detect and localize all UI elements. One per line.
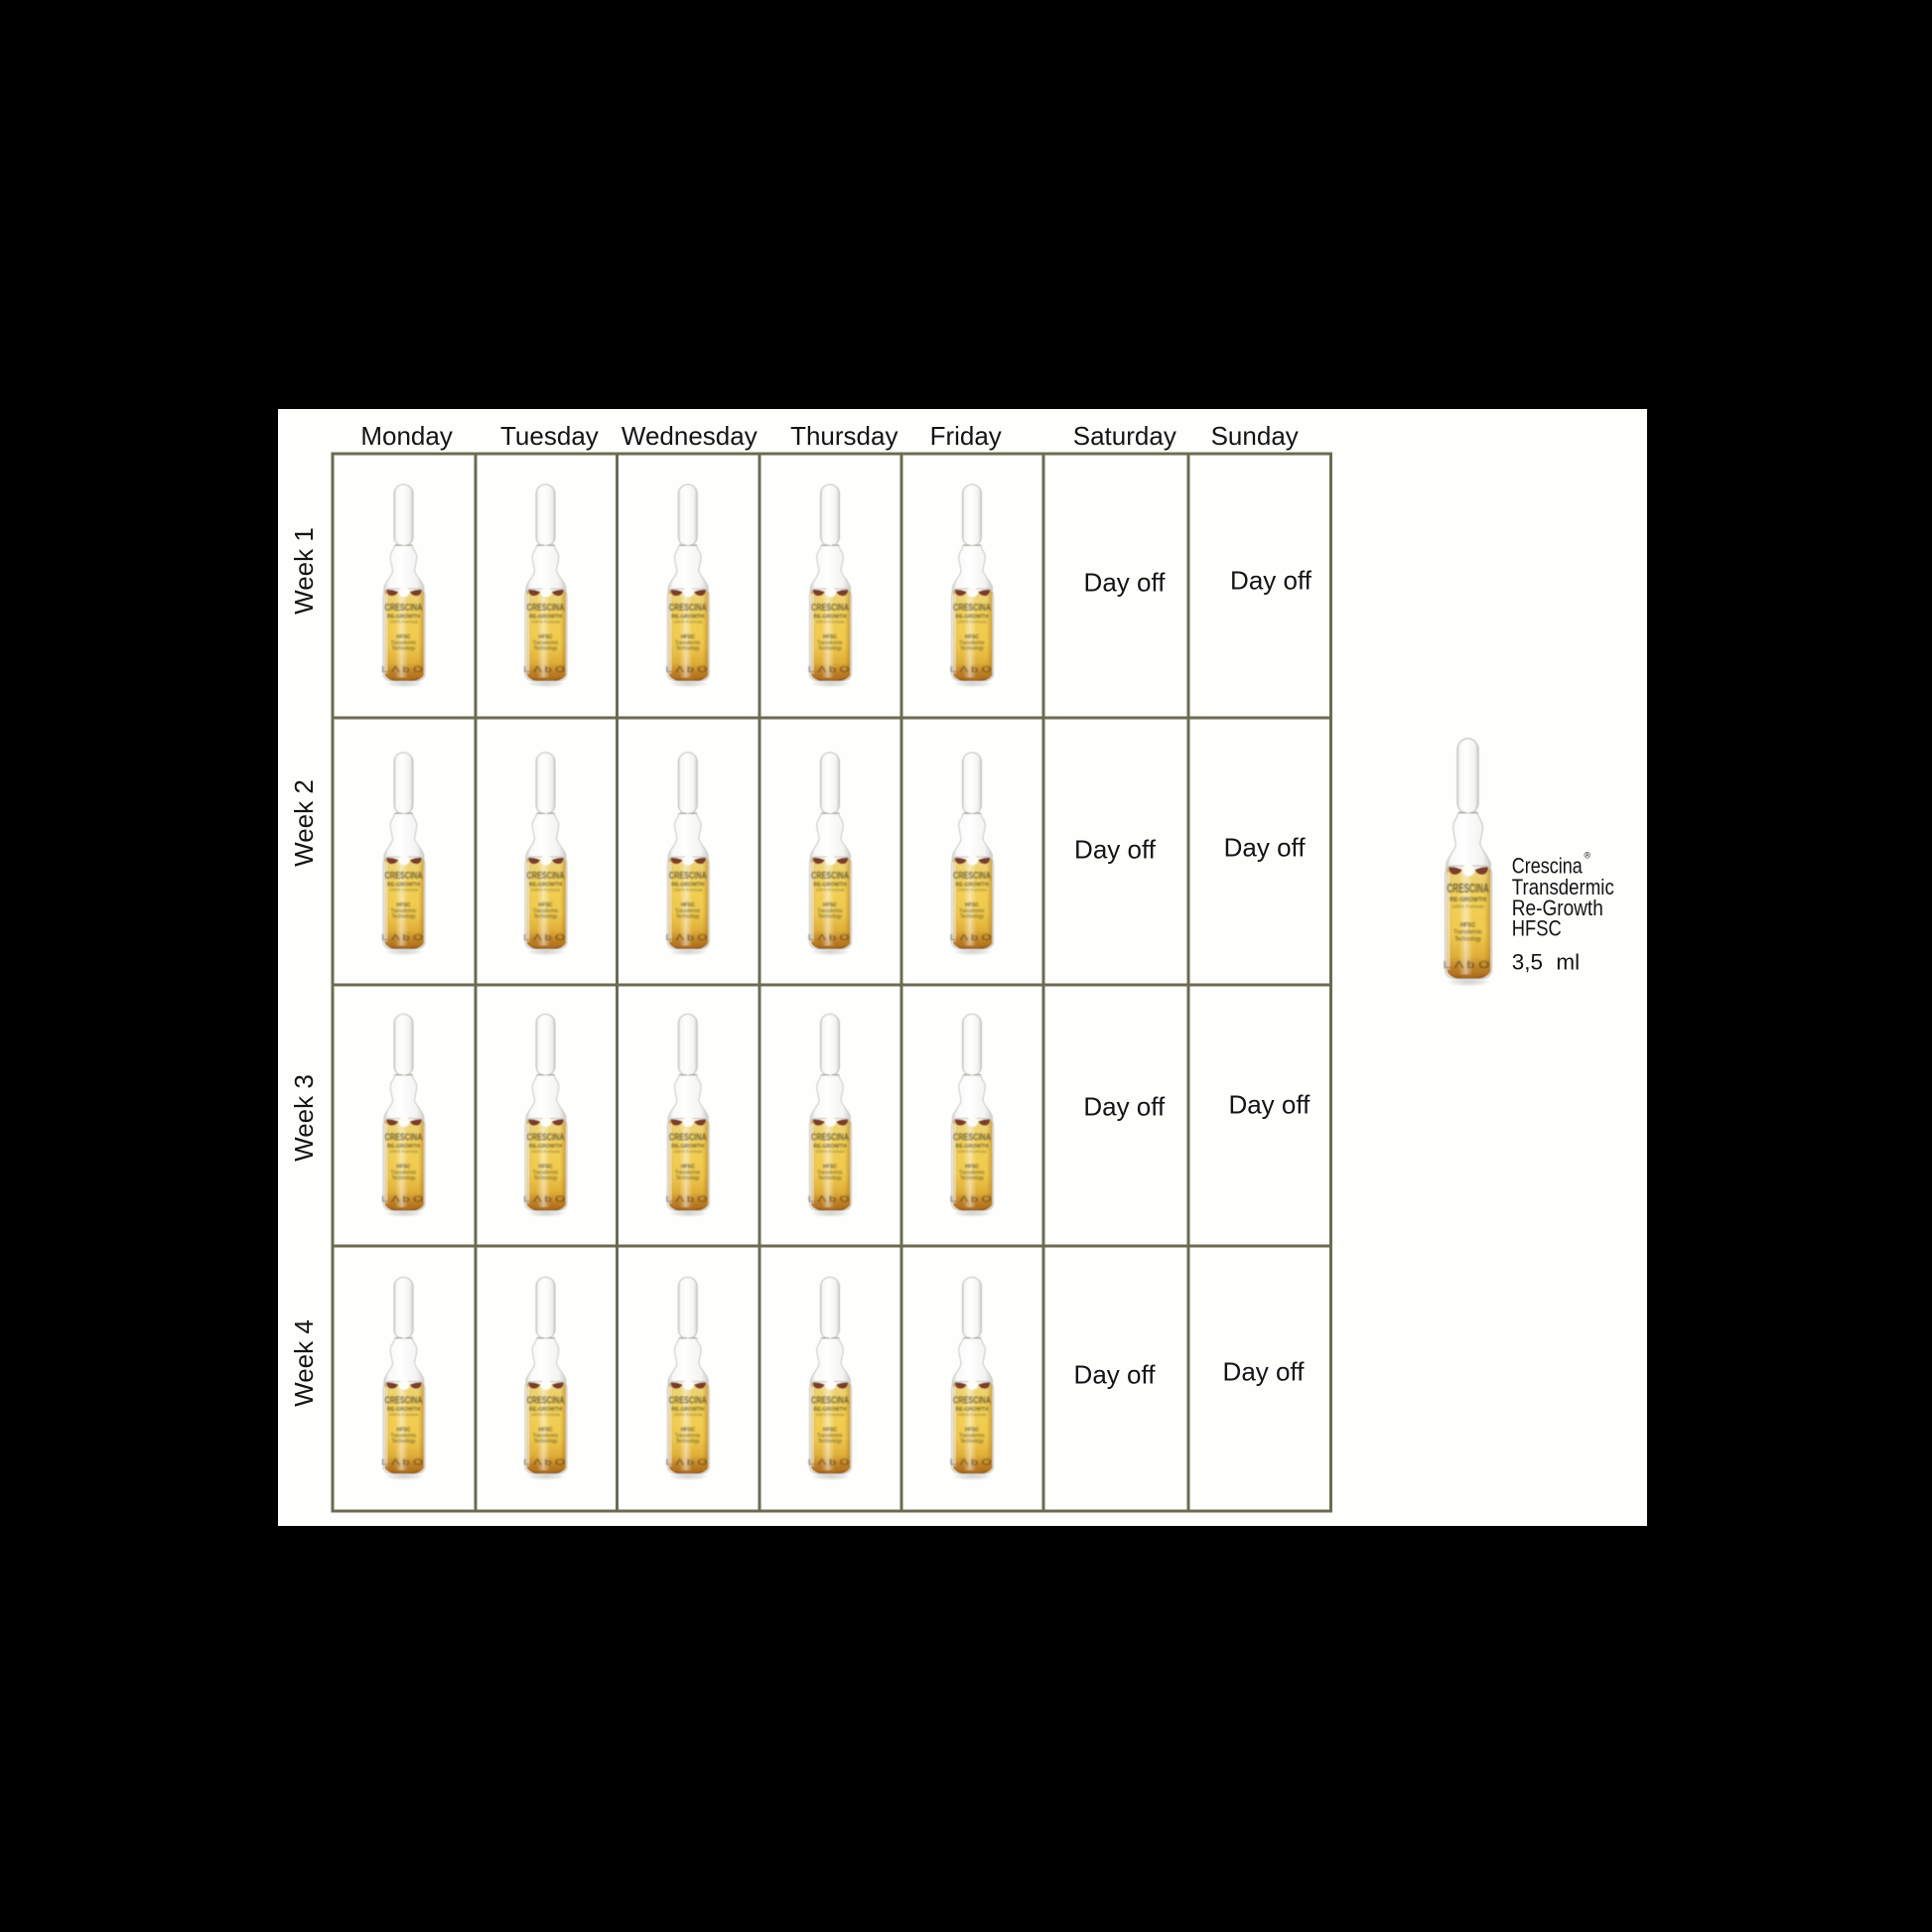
svg-text:Saturday: Saturday bbox=[1073, 421, 1176, 451]
svg-text:Day off: Day off bbox=[1084, 568, 1167, 598]
svg-text:Wednesday: Wednesday bbox=[621, 421, 758, 451]
svg-text:Sunday: Sunday bbox=[1211, 421, 1299, 451]
svg-text:®: ® bbox=[1585, 851, 1591, 861]
svg-text:Friday: Friday bbox=[930, 421, 1002, 451]
svg-text:Week 1: Week 1 bbox=[289, 527, 319, 615]
svg-text:Thursday: Thursday bbox=[790, 421, 897, 451]
svg-text:Week 2: Week 2 bbox=[289, 779, 319, 867]
svg-text:Day off: Day off bbox=[1083, 1091, 1166, 1121]
svg-text:Week 4: Week 4 bbox=[289, 1319, 319, 1407]
svg-text:Day off: Day off bbox=[1074, 1360, 1157, 1390]
svg-text:Day off: Day off bbox=[1224, 833, 1307, 863]
svg-text:Day off: Day off bbox=[1223, 1357, 1306, 1387]
svg-text:Tuesday: Tuesday bbox=[500, 421, 599, 451]
svg-text:HFSC: HFSC bbox=[1512, 915, 1562, 940]
svg-text:Day off: Day off bbox=[1228, 1089, 1311, 1119]
svg-text:Week 3: Week 3 bbox=[289, 1074, 319, 1162]
svg-text:3,5 ml: 3,5 ml bbox=[1512, 950, 1580, 975]
svg-text:Day off: Day off bbox=[1074, 835, 1157, 865]
svg-text:Day off: Day off bbox=[1230, 566, 1312, 596]
svg-text:Monday: Monday bbox=[360, 421, 453, 451]
